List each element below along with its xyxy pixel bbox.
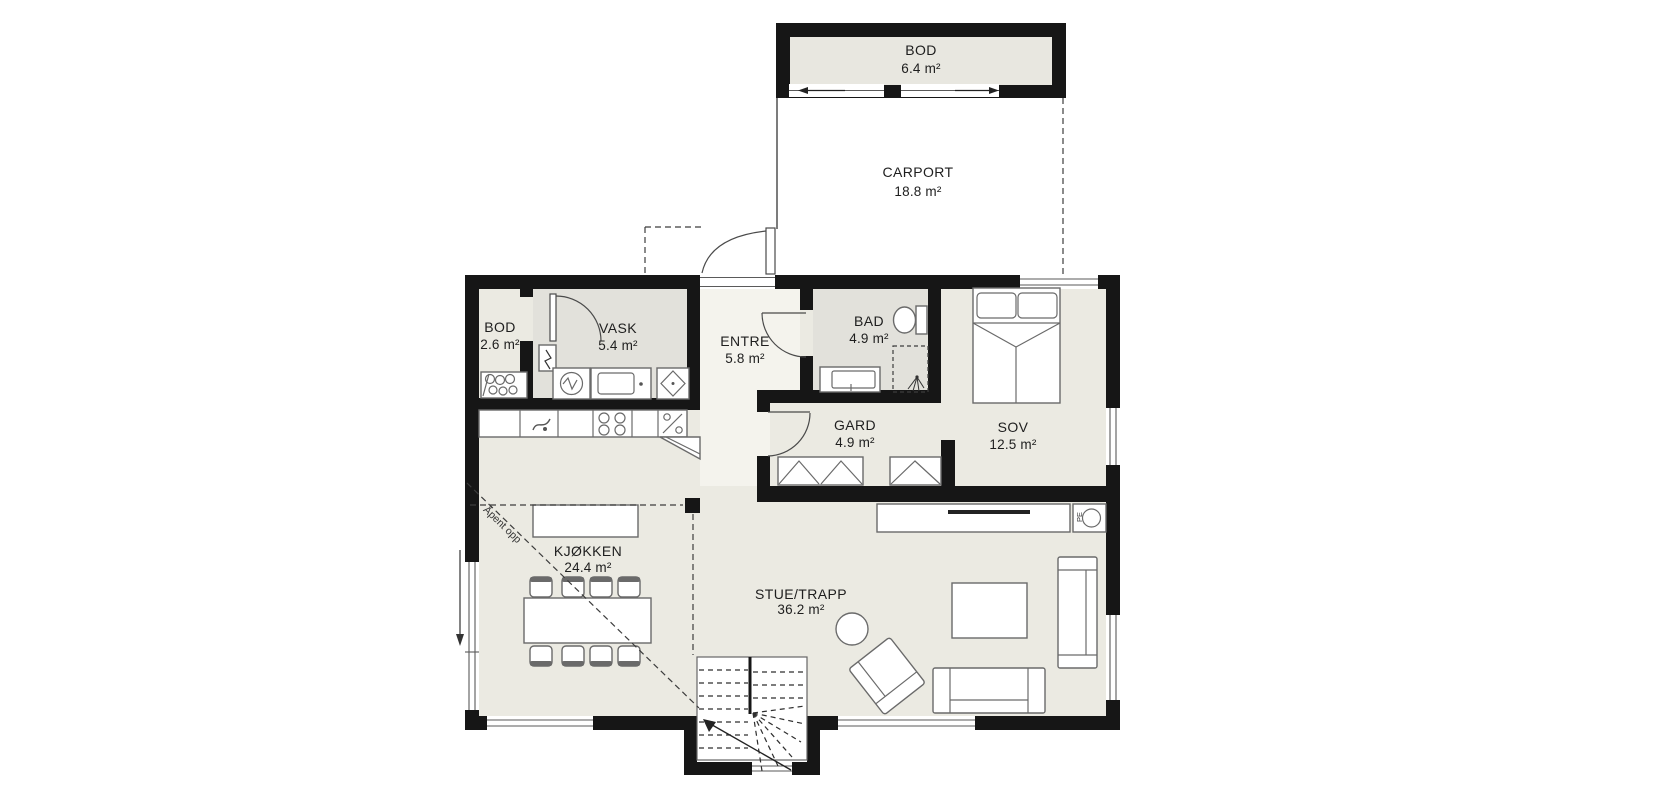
- laundry-sink-counter: [591, 368, 651, 399]
- entrance-door-gap: [700, 275, 775, 289]
- room-label-vask: VASK: [599, 320, 637, 336]
- slide-direction-arrow-icon: [456, 634, 464, 646]
- coffee-table: [952, 583, 1027, 638]
- chair: [562, 646, 584, 666]
- room-label-bad: BAD: [854, 313, 884, 329]
- room-area-bod-storage: 6.4 m²: [901, 61, 941, 76]
- bathroom-vanity: [820, 367, 880, 392]
- wardrobe-unit-right: [890, 457, 941, 485]
- stairwell-walls: [684, 657, 820, 775]
- chair: [590, 577, 612, 597]
- chair: [530, 577, 552, 597]
- floor-plan: PE: [0, 0, 1670, 800]
- room-label-carport: CARPORT: [883, 164, 954, 180]
- room-area-kjokken: 24.4 m²: [564, 560, 611, 575]
- room-label-kjokken: KJØKKEN: [554, 543, 622, 559]
- room-area-gard: 4.9 m²: [835, 435, 875, 450]
- entrance-door: [702, 228, 775, 274]
- fireplace-label: PE: [1075, 512, 1084, 522]
- room-label-entre: ENTRE: [720, 333, 769, 349]
- tumble-dryer: [657, 368, 689, 399]
- chair: [618, 577, 640, 597]
- chair: [590, 646, 612, 666]
- side-table-round: [836, 613, 868, 645]
- room-area-bad: 4.9 m²: [849, 331, 889, 346]
- chair: [618, 646, 640, 666]
- room-area-bod: 2.6 m²: [480, 337, 520, 352]
- bod-shelving: [481, 372, 527, 398]
- room-area-stue: 36.2 m²: [777, 602, 824, 617]
- fireplace: PE: [1073, 504, 1106, 532]
- wardrobe-unit-left: [778, 457, 863, 485]
- room-label-sov: SOV: [998, 419, 1029, 435]
- room-label-bod: BOD: [484, 319, 516, 335]
- toilet: [894, 306, 928, 334]
- window-right-sov: [1106, 408, 1120, 465]
- dining-table: [524, 598, 651, 643]
- room-area-sov: 12.5 m²: [989, 437, 1036, 452]
- window-top-sov: [1020, 275, 1098, 289]
- chair: [530, 646, 552, 666]
- room-area-entre: 5.8 m²: [725, 351, 765, 366]
- sliding-door-left: [456, 550, 479, 710]
- room-label-bod-storage: BOD: [905, 42, 937, 58]
- window-bottom-kjokken: [487, 716, 593, 730]
- chair: [562, 577, 584, 597]
- double-bed: [973, 288, 1060, 403]
- window-right-stue: [1106, 615, 1120, 700]
- room-area-carport: 18.8 m²: [894, 184, 941, 199]
- room-label-stue: STUE/TRAPP: [755, 586, 847, 602]
- sofa-right: [1058, 557, 1097, 668]
- sofa: [933, 668, 1045, 713]
- entrance-canopy: [645, 227, 702, 274]
- kitchen-island: [533, 505, 638, 537]
- structural-column: [685, 498, 700, 513]
- floor-plan-drawing: PE: [0, 0, 1670, 800]
- room-area-vask: 5.4 m²: [598, 338, 638, 353]
- room-label-gard: GARD: [834, 417, 876, 433]
- electrical-cabinet: [539, 345, 556, 371]
- washing-machine: [553, 368, 590, 399]
- window-bottom-stue: [838, 716, 975, 730]
- sideboard: [877, 504, 1070, 532]
